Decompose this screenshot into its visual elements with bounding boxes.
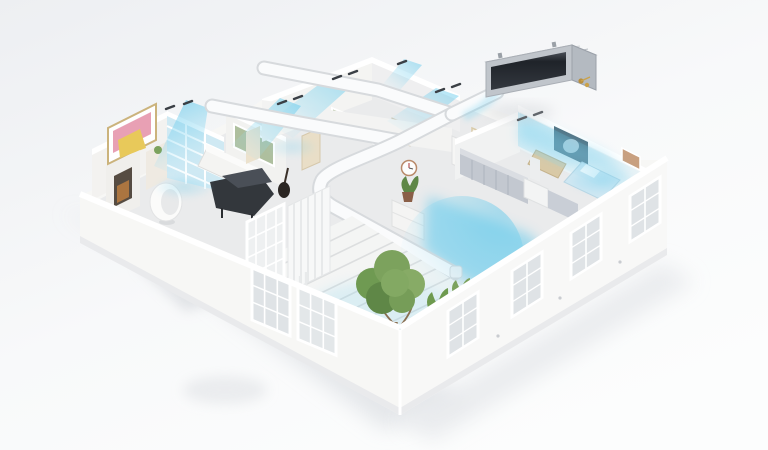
wall-clock — [402, 161, 417, 176]
scene-illustration — [0, 0, 768, 450]
product-illustration-canvas — [0, 0, 768, 450]
